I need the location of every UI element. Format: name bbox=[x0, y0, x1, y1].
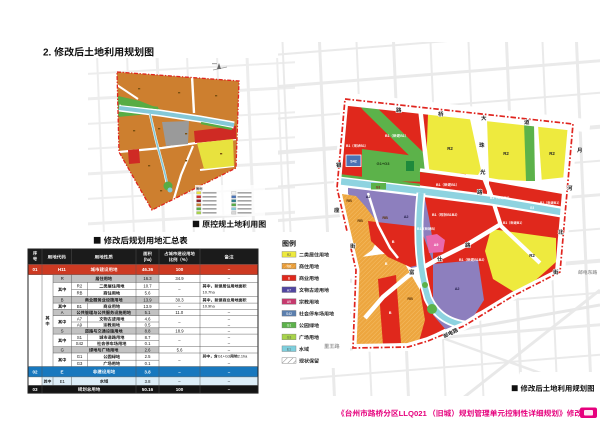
svg-text:B1B2: B1B2 bbox=[447, 213, 456, 217]
svg-text:R2: R2 bbox=[549, 151, 555, 156]
svg-text:S42: S42 bbox=[350, 160, 356, 164]
svg-text:R: R bbox=[61, 276, 64, 281]
svg-text:100: 100 bbox=[176, 387, 184, 392]
svg-text:03: 03 bbox=[33, 387, 39, 392]
svg-text:B1: B1 bbox=[385, 134, 390, 138]
svg-text:R2: R2 bbox=[77, 284, 83, 289]
svg-text:5.6: 5.6 bbox=[145, 291, 151, 296]
svg-text:A7: A7 bbox=[77, 317, 83, 322]
svg-text:(ha): (ha) bbox=[144, 257, 152, 262]
svg-text:R2: R2 bbox=[529, 253, 535, 258]
svg-text:34.9: 34.9 bbox=[175, 276, 184, 281]
svg-text:10.7ha: 10.7ha bbox=[203, 289, 216, 294]
svg-text:B1: B1 bbox=[451, 183, 456, 187]
svg-text:S1: S1 bbox=[77, 335, 83, 340]
svg-text:–: – bbox=[228, 317, 231, 322]
svg-text:A2: A2 bbox=[455, 287, 460, 291]
svg-text:50.16: 50.16 bbox=[142, 387, 154, 392]
svg-text:A2: A2 bbox=[404, 215, 409, 219]
svg-text:B1: B1 bbox=[540, 201, 544, 205]
svg-text:S42: S42 bbox=[76, 341, 84, 346]
svg-text:RB: RB bbox=[77, 291, 83, 296]
svg-text:10.9ha: 10.9ha bbox=[203, 303, 216, 308]
svg-text:–: – bbox=[178, 304, 181, 309]
svg-text:3.8: 3.8 bbox=[144, 369, 151, 374]
svg-text:B1: B1 bbox=[504, 196, 508, 200]
svg-text:G1+G3: G1+G3 bbox=[218, 355, 230, 359]
svg-text:8.7: 8.7 bbox=[145, 335, 151, 340]
svg-text:16.3: 16.3 bbox=[143, 276, 152, 281]
svg-text:RB: RB bbox=[382, 216, 388, 220]
svg-text:H11: H11 bbox=[58, 267, 67, 272]
svg-text:–: – bbox=[228, 310, 231, 315]
svg-text:RB: RB bbox=[346, 199, 352, 203]
svg-text:G1+G3: G1+G3 bbox=[377, 161, 391, 166]
svg-text:E1: E1 bbox=[60, 379, 66, 384]
svg-text:G3: G3 bbox=[376, 186, 381, 190]
svg-text:B: B bbox=[385, 262, 388, 266]
svg-text:0.1: 0.1 bbox=[145, 341, 151, 346]
svg-text:30.3: 30.3 bbox=[175, 297, 184, 302]
svg-text:B1: B1 bbox=[517, 221, 521, 225]
svg-text:RB: RB bbox=[357, 219, 363, 223]
svg-text:B1: B1 bbox=[346, 144, 350, 148]
svg-text:A: A bbox=[61, 310, 64, 315]
svg-text:A9: A9 bbox=[77, 323, 83, 328]
svg-text:G3: G3 bbox=[77, 361, 83, 366]
svg-text:–: – bbox=[178, 338, 181, 343]
svg-text:R2: R2 bbox=[503, 151, 509, 156]
svg-text:S42: S42 bbox=[286, 312, 292, 316]
svg-text:B1: B1 bbox=[459, 258, 464, 262]
svg-text:13.9: 13.9 bbox=[143, 304, 152, 309]
svg-text:–: – bbox=[178, 319, 181, 324]
svg-text:B: B bbox=[392, 240, 395, 244]
svg-text:B1: B1 bbox=[77, 304, 83, 309]
svg-text:R2: R2 bbox=[447, 146, 453, 151]
svg-text:S: S bbox=[61, 329, 64, 334]
svg-text:B1: B1 bbox=[554, 201, 558, 205]
svg-text:2.5: 2.5 bbox=[145, 354, 151, 359]
svg-text:B1: B1 bbox=[417, 227, 421, 231]
svg-text:B1: B1 bbox=[432, 213, 437, 217]
svg-text:B: B bbox=[389, 311, 392, 315]
svg-text:B1: B1 bbox=[400, 134, 405, 138]
svg-text:2.6: 2.6 bbox=[145, 348, 151, 353]
svg-text:A9: A9 bbox=[434, 243, 439, 247]
svg-text:G: G bbox=[61, 348, 64, 353]
svg-text:10.7: 10.7 bbox=[143, 284, 152, 289]
svg-text:01: 01 bbox=[33, 267, 39, 272]
svg-text:02: 02 bbox=[33, 369, 39, 374]
svg-text:B1: B1 bbox=[436, 183, 441, 187]
svg-text:8.8: 8.8 bbox=[145, 329, 151, 334]
svg-text:2.1ha: 2.1ha bbox=[238, 355, 248, 359]
svg-text:46.36: 46.36 bbox=[142, 267, 154, 272]
svg-text:%: % bbox=[182, 257, 186, 262]
svg-text:R2: R2 bbox=[287, 253, 291, 257]
svg-text:–: – bbox=[228, 329, 231, 334]
svg-text:–: – bbox=[228, 348, 231, 353]
svg-text:–: – bbox=[178, 357, 181, 362]
svg-text:B1: B1 bbox=[360, 144, 364, 148]
svg-text:0.5: 0.5 bbox=[145, 323, 151, 328]
svg-text:A7: A7 bbox=[287, 288, 291, 292]
svg-text:4.6: 4.6 bbox=[145, 317, 151, 322]
svg-text:E: E bbox=[61, 369, 64, 374]
svg-text:B1: B1 bbox=[490, 196, 494, 200]
svg-text:A2: A2 bbox=[366, 195, 371, 199]
svg-text:–: – bbox=[228, 276, 231, 281]
svg-text:5.6: 5.6 bbox=[177, 348, 183, 353]
svg-text:G3: G3 bbox=[287, 336, 292, 340]
svg-text:–: – bbox=[228, 323, 231, 328]
svg-text:0.1: 0.1 bbox=[145, 361, 151, 366]
svg-text:B1B2: B1B2 bbox=[474, 258, 483, 262]
svg-text:G1: G1 bbox=[77, 354, 83, 359]
svg-text:–: – bbox=[178, 287, 181, 292]
svg-text:11.0: 11.0 bbox=[175, 310, 184, 315]
svg-text:G1: G1 bbox=[287, 324, 292, 328]
svg-text:2.: 2. bbox=[43, 48, 52, 59]
svg-text:–: – bbox=[228, 335, 231, 340]
svg-text:B1: B1 bbox=[503, 221, 507, 225]
svg-text:E1: E1 bbox=[287, 347, 291, 351]
svg-text:G3: G3 bbox=[530, 206, 534, 210]
svg-text:A9: A9 bbox=[287, 300, 291, 304]
svg-text:LLQ021: LLQ021 bbox=[399, 409, 428, 418]
svg-text:–: – bbox=[228, 341, 231, 346]
svg-text:13.9: 13.9 bbox=[143, 297, 152, 302]
svg-text:B: B bbox=[61, 297, 64, 302]
svg-text:RB: RB bbox=[407, 297, 413, 301]
svg-text:5.1: 5.1 bbox=[145, 310, 151, 315]
svg-text:–: – bbox=[228, 361, 231, 366]
svg-text:18.9: 18.9 bbox=[175, 329, 184, 334]
svg-text:3.8: 3.8 bbox=[145, 379, 151, 384]
svg-text:RB: RB bbox=[287, 265, 292, 269]
svg-text:100: 100 bbox=[176, 267, 184, 272]
